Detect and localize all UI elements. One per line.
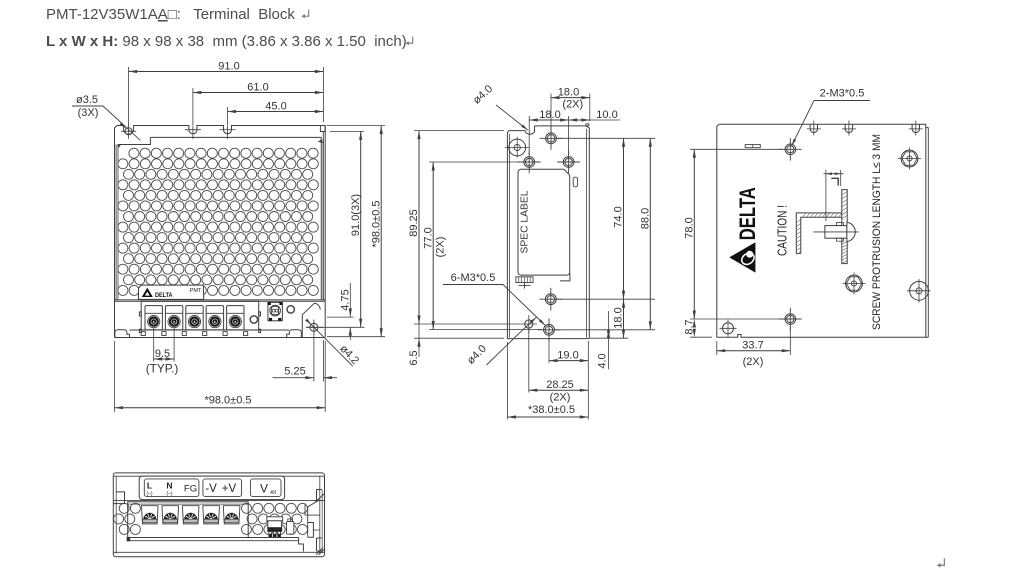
svg-text:9.5: 9.5 bbox=[155, 348, 170, 360]
svg-text:6-M3*0.5: 6-M3*0.5 bbox=[451, 272, 496, 284]
svg-text:*98.0±0.5: *98.0±0.5 bbox=[204, 395, 251, 407]
svg-text:61.0: 61.0 bbox=[247, 81, 268, 93]
svg-text:*98.0±0.5: *98.0±0.5 bbox=[370, 200, 382, 247]
svg-text:SPEC LABEL: SPEC LABEL bbox=[519, 190, 530, 253]
svg-text:28.25: 28.25 bbox=[546, 379, 574, 391]
svg-text:4.0: 4.0 bbox=[596, 353, 608, 368]
svg-text:4.75: 4.75 bbox=[340, 289, 352, 310]
svg-text:18.0: 18.0 bbox=[539, 109, 560, 121]
svg-text:(2X): (2X) bbox=[562, 99, 583, 111]
svg-text:(–): (–) bbox=[166, 491, 172, 497]
svg-text:10.0: 10.0 bbox=[596, 109, 617, 121]
svg-text:2-M3*0.5: 2-M3*0.5 bbox=[820, 88, 865, 100]
svg-text:45.0: 45.0 bbox=[265, 100, 286, 112]
svg-text:18.0: 18.0 bbox=[613, 307, 625, 328]
svg-text:(TYP.): (TYP.) bbox=[146, 362, 179, 376]
svg-text:89.25: 89.25 bbox=[408, 209, 420, 237]
svg-text:(2X): (2X) bbox=[550, 391, 571, 403]
svg-text:(2X): (2X) bbox=[743, 356, 764, 368]
svg-text:V: V bbox=[260, 481, 268, 495]
svg-text:74.0: 74.0 bbox=[613, 206, 625, 227]
svg-text:88.0: 88.0 bbox=[640, 208, 652, 229]
svg-text:CAUTION !: CAUTION ! bbox=[775, 205, 790, 256]
svg-text:PMT-12V35W1AA□: Terminal Bl: PMT-12V35W1AA□: Terminal Block bbox=[46, 6, 295, 23]
svg-text:L: L bbox=[147, 480, 152, 490]
svg-text:8.7: 8.7 bbox=[684, 319, 696, 334]
svg-text:DELTA: DELTA bbox=[735, 187, 760, 240]
svg-text:91.0: 91.0 bbox=[218, 60, 239, 72]
svg-text:FG: FG bbox=[184, 484, 197, 495]
svg-text:-V: -V bbox=[205, 483, 217, 495]
svg-text:78.0: 78.0 bbox=[684, 217, 696, 238]
svg-text:6.5: 6.5 bbox=[408, 350, 420, 365]
svg-text:(3X): (3X) bbox=[78, 107, 99, 119]
svg-text:*38.0±0.5: *38.0±0.5 bbox=[528, 404, 575, 416]
svg-text:+V: +V bbox=[222, 483, 237, 495]
svg-text:19.0: 19.0 bbox=[557, 349, 578, 361]
svg-text:5.25: 5.25 bbox=[284, 366, 305, 378]
svg-text:18.0: 18.0 bbox=[558, 86, 579, 98]
svg-text:(–): (–) bbox=[146, 491, 152, 497]
svg-text:ø3.5: ø3.5 bbox=[76, 94, 98, 106]
svg-text:N: N bbox=[166, 480, 172, 490]
svg-text:DELTA: DELTA bbox=[155, 292, 173, 299]
svg-text:77.0: 77.0 bbox=[422, 227, 434, 248]
svg-text:PMT: PMT bbox=[190, 288, 202, 294]
svg-text:33.7: 33.7 bbox=[742, 340, 763, 352]
svg-text:L x W x H: 98 x 98 x 38 mm (3: L x W x H: 98 x 98 x 38 mm (3.86 x 3.86 … bbox=[46, 33, 407, 50]
svg-text:ADJ: ADJ bbox=[270, 489, 276, 494]
svg-text:91.0(3X): 91.0(3X) bbox=[350, 194, 362, 236]
svg-text:(2X): (2X) bbox=[435, 237, 447, 258]
svg-text:SCREW PROTRUSION LENGTH L≤ 3: SCREW PROTRUSION LENGTH L≤ 3 MM bbox=[871, 134, 883, 330]
